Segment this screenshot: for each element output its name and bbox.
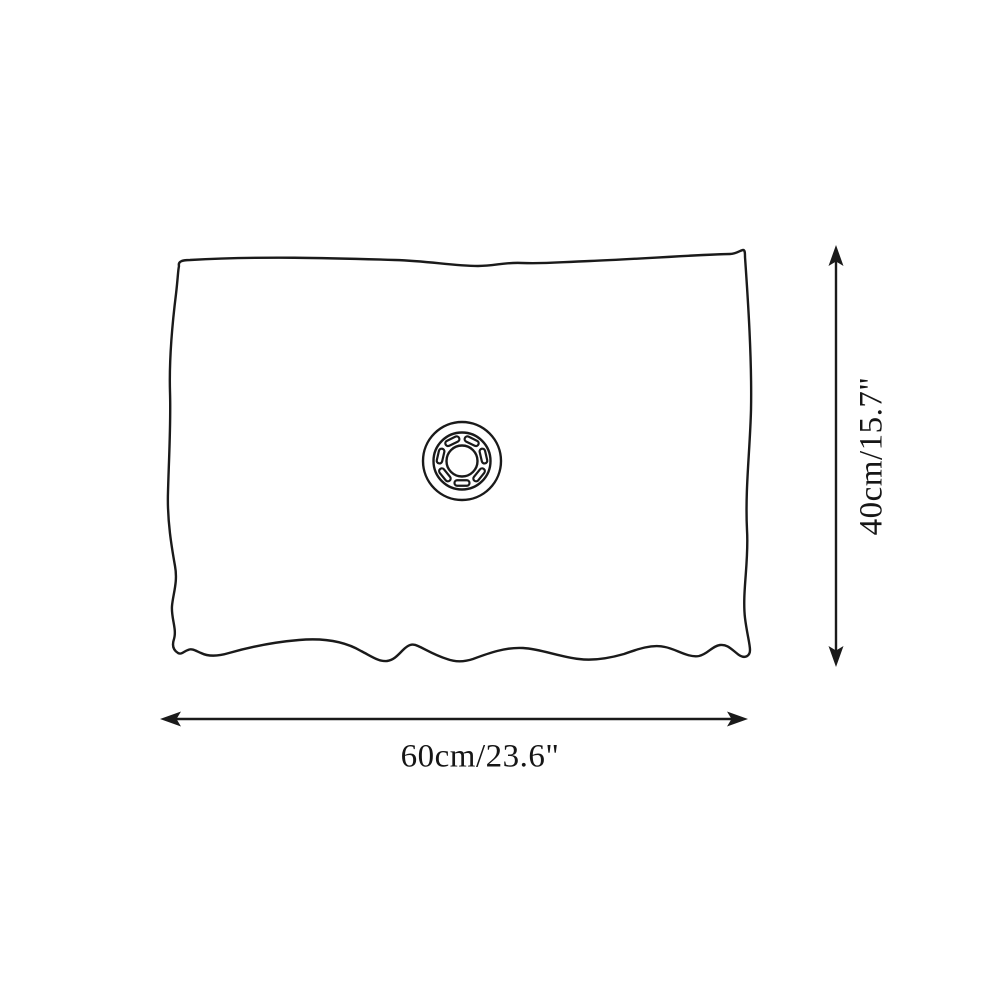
valve-slot [479, 448, 488, 464]
height-dimension-label: 40cm/15.7" [854, 377, 891, 536]
diagram-drawing [0, 0, 1000, 1000]
product-outline [168, 250, 751, 661]
valve-slots [436, 435, 488, 485]
valve-slot [436, 448, 445, 464]
height-dimension-arrow-icon [829, 245, 844, 667]
valve-slot [455, 480, 470, 486]
width-dimension-label: 60cm/23.6" [401, 739, 560, 776]
valve-outer-ring [423, 422, 501, 500]
valve-center-hole [447, 446, 478, 477]
center-valve-icon [423, 422, 501, 500]
width-dimension-arrow-icon [160, 712, 748, 727]
dimension-diagram: 60cm/23.6" 40cm/15.7" [0, 0, 1000, 1000]
